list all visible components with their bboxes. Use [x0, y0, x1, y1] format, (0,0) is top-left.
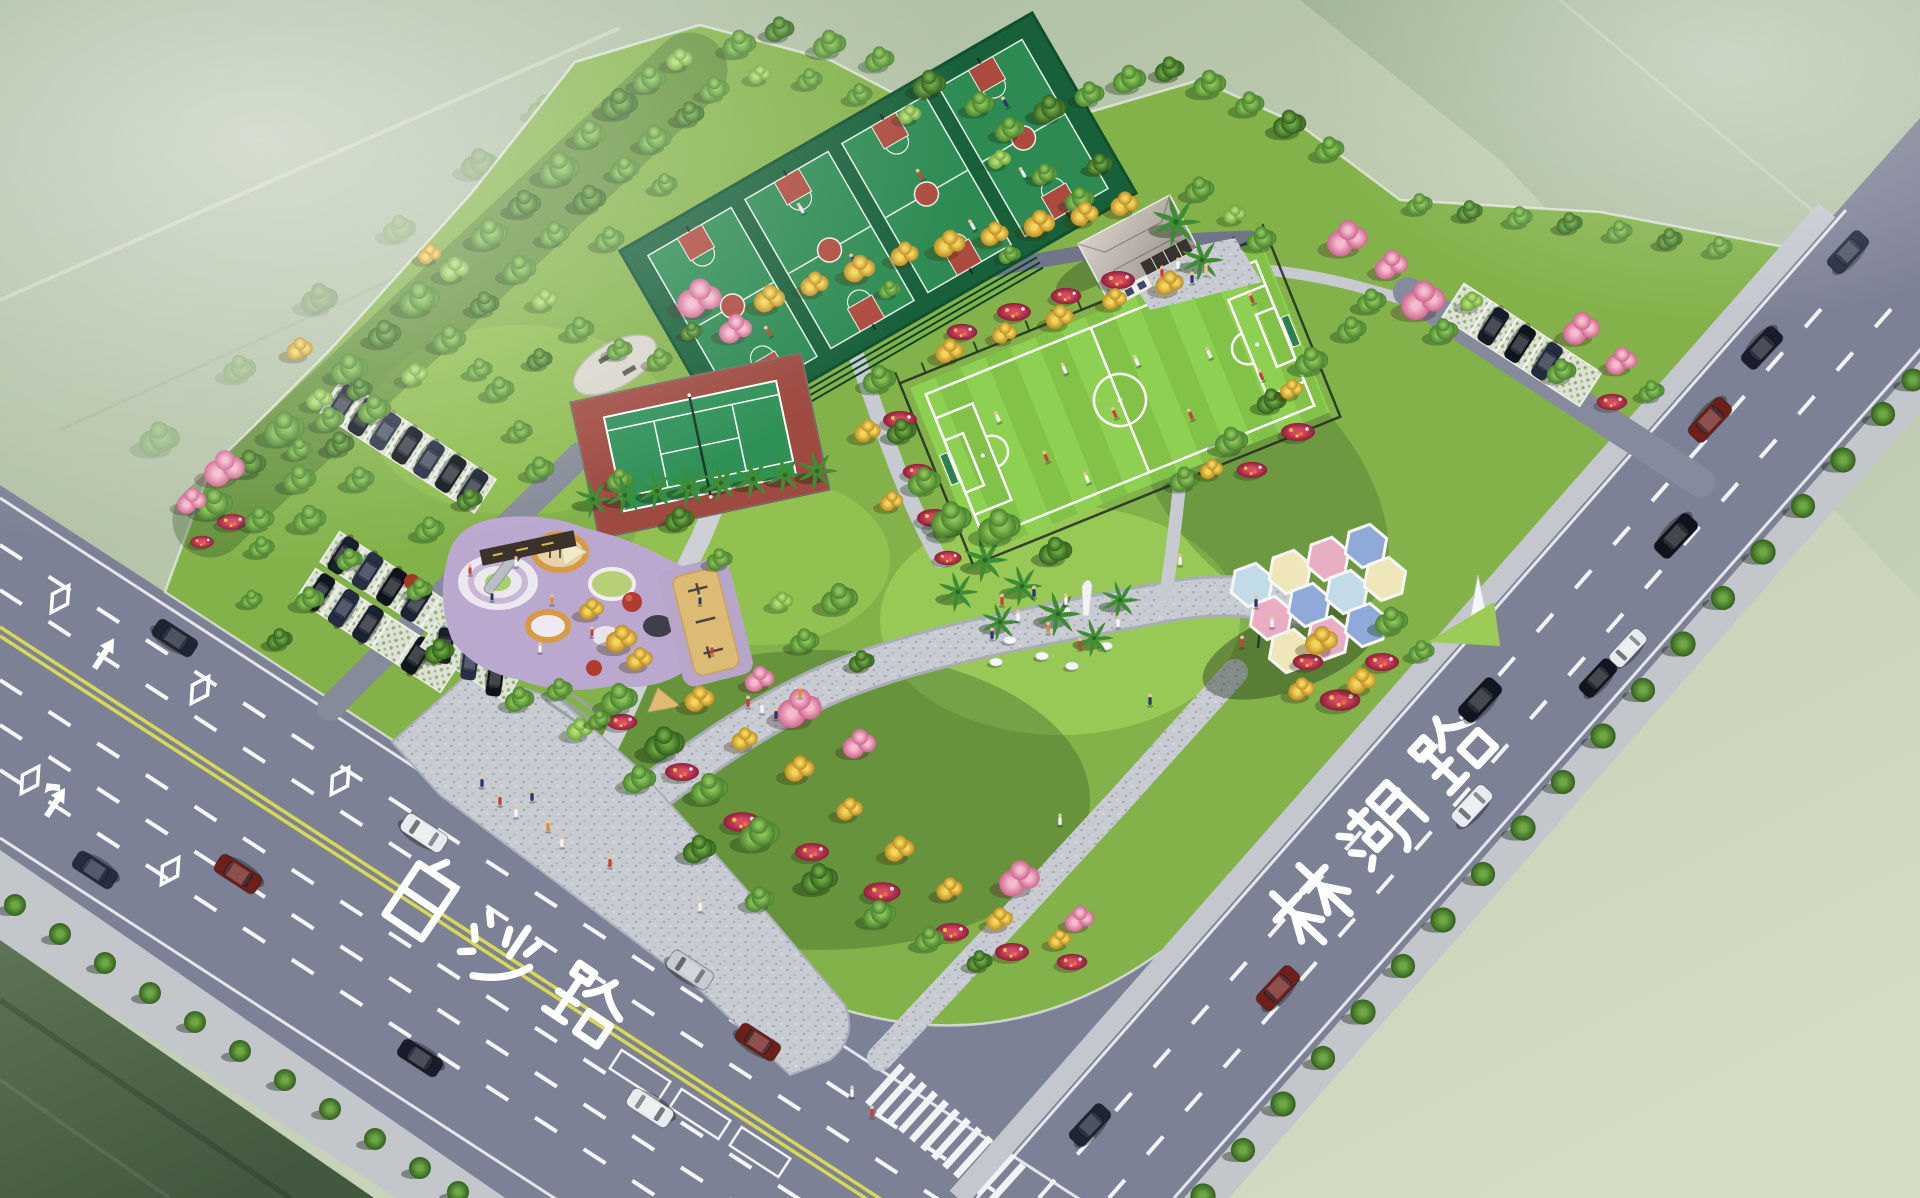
- scene-canvas: 白沙路 林湖路: [0, 0, 1920, 1198]
- park-aerial-rendering: 白沙路 林湖路: [0, 0, 1920, 1198]
